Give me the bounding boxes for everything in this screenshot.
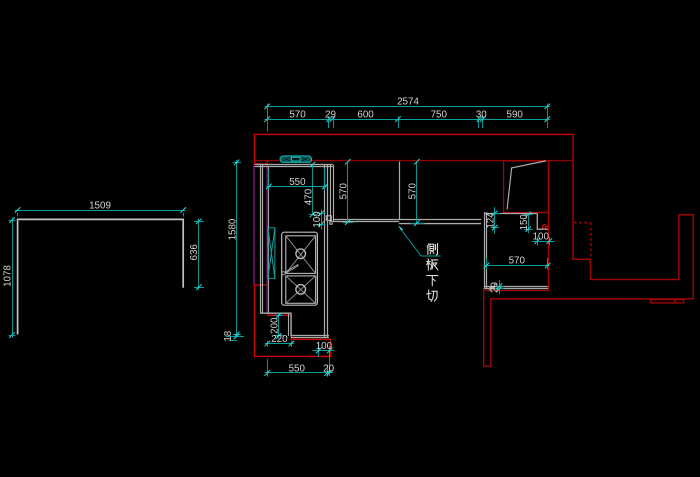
svg-text:29: 29 [325,110,336,121]
svg-text:1078: 1078 [3,265,14,287]
svg-text:1580: 1580 [227,218,238,240]
svg-text:124: 124 [485,212,496,229]
svg-text:470: 470 [303,188,314,205]
svg-text:570: 570 [509,256,526,267]
svg-text:18: 18 [223,330,234,341]
svg-text:550: 550 [289,363,306,374]
svg-text:30: 30 [476,110,487,121]
svg-text:570: 570 [289,110,306,121]
svg-text:636: 636 [189,244,200,261]
svg-text:570: 570 [339,182,350,199]
svg-text:220: 220 [271,334,288,345]
svg-text:150: 150 [519,214,530,231]
svg-text:200: 200 [269,317,280,334]
svg-text:550: 550 [289,177,306,188]
svg-text:600: 600 [357,110,374,121]
svg-text:2574: 2574 [397,97,419,108]
svg-text:590: 590 [507,110,524,121]
svg-text:1509: 1509 [89,200,111,211]
svg-text:100: 100 [533,231,550,242]
svg-text:570: 570 [408,182,419,199]
svg-text:100: 100 [312,211,323,228]
svg-text:100: 100 [316,341,333,352]
svg-text:20: 20 [323,363,334,374]
svg-text:20: 20 [489,282,500,293]
svg-text:750: 750 [431,110,448,121]
